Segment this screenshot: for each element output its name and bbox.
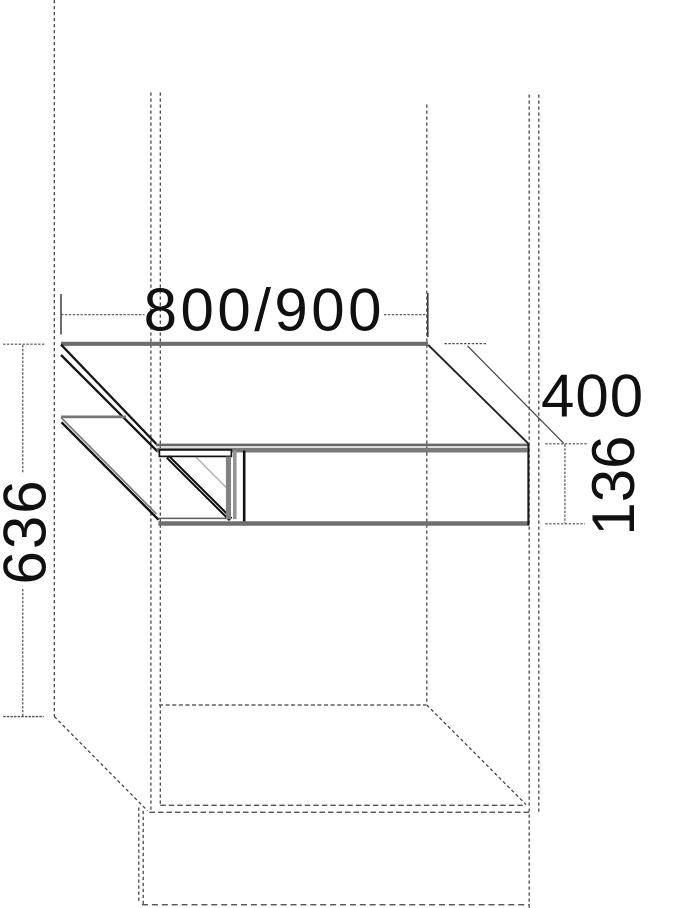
svg-text:636: 636 — [0, 478, 59, 584]
svg-text:400: 400 — [541, 363, 644, 430]
svg-text:136: 136 — [580, 435, 647, 535]
svg-text:800/900: 800/900 — [144, 277, 385, 344]
